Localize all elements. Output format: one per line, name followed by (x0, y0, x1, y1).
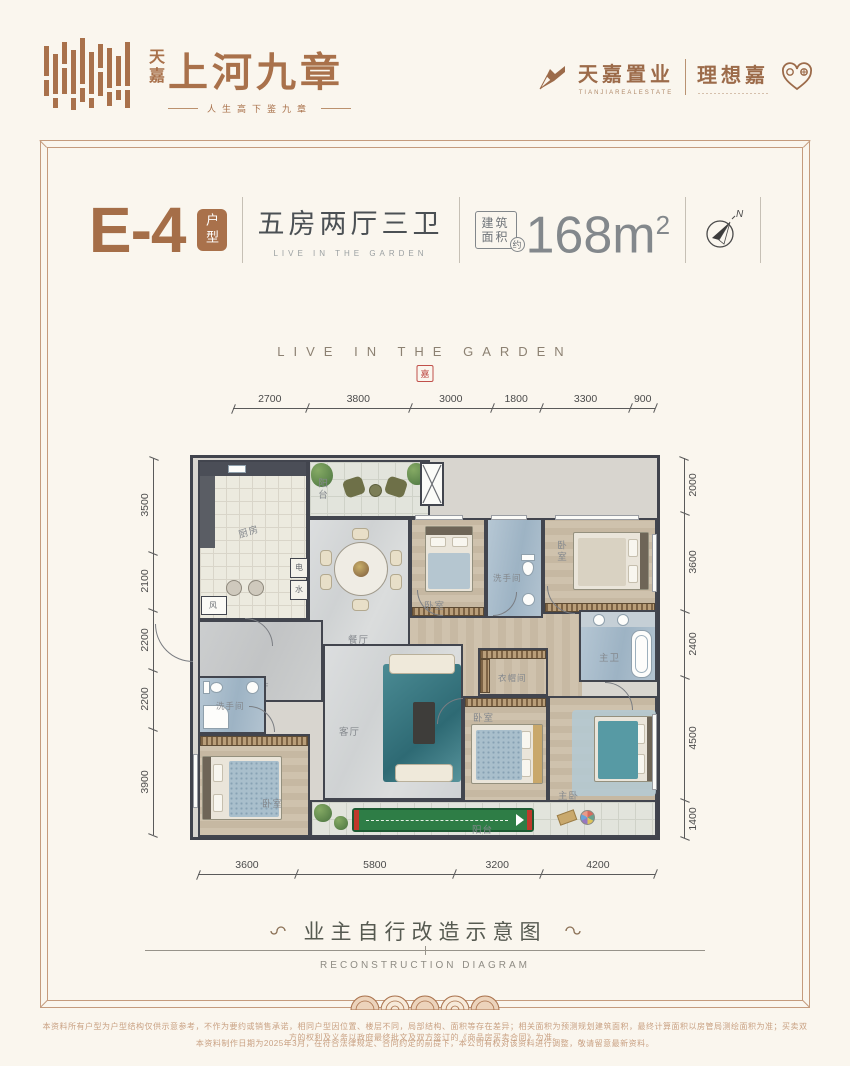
dim-value: 2700 (233, 393, 307, 405)
duct-shaft (420, 462, 444, 506)
ornament-left-icon (270, 924, 288, 938)
layout-text: 五房两厅三卫 (258, 202, 444, 241)
caption-subtitle: RECONSTRUCTION DIAGRAM (0, 960, 850, 971)
area-value: 168m2 (526, 197, 671, 263)
door-arc (249, 706, 275, 732)
bed (202, 756, 282, 820)
window (652, 534, 657, 592)
vent-label: 风 (209, 600, 218, 611)
window (193, 754, 198, 808)
pillow (628, 565, 638, 583)
partner-name: 理想嘉 (697, 59, 769, 88)
poster: 天嘉 上河九章 人生高下鉴九章 天嘉置业 TIANJIAREALESTATE 理… (0, 0, 850, 1066)
dim-segment: 5800 (296, 859, 454, 875)
room-cloakroom: 衣帽间 (478, 648, 548, 696)
partner-subtext-decor (697, 92, 769, 95)
pillow (521, 759, 531, 777)
kitchen-appliance-column (200, 476, 215, 548)
pillow (452, 537, 468, 547)
utility-label: 电 (295, 562, 304, 573)
corporate-logos: 天嘉置业 TIANJIAREALESTATE 理想嘉 (537, 58, 814, 96)
bed-headboard (533, 725, 542, 783)
developer-name-block: 天嘉置业 TIANJIAREALESTATE (578, 58, 674, 96)
dim-value: 3800 (307, 393, 410, 405)
dim-value: 4200 (541, 859, 655, 871)
pillow (430, 537, 446, 547)
brand-tagline: 人生高下鉴九章 (207, 102, 312, 115)
watermark-text: LIVE IN THE GARDEN (0, 344, 850, 359)
plant (334, 816, 348, 830)
sink-icon (593, 614, 605, 626)
caption-title: 业主自行改造示意图 (304, 916, 547, 946)
bed-headboard (203, 757, 211, 819)
dim-value: 3600 (198, 859, 296, 871)
title-divider-2 (459, 197, 460, 263)
dining-centerpiece (353, 561, 369, 577)
developer-name-en: TIANJIAREALESTATE (578, 90, 674, 96)
room-bedroom-left: 卧室 (198, 734, 310, 837)
title-divider-3 (685, 197, 686, 263)
wardrobe (480, 650, 546, 659)
logo-divider (685, 59, 686, 95)
area-block: 建筑 面积 约 168m2 (475, 197, 671, 263)
vent-box: 风 (201, 596, 227, 615)
area-label-stamp: 建筑 面积 约 (475, 211, 517, 249)
dim-segment: 3200 (454, 859, 541, 875)
pillow (521, 731, 531, 749)
dim-value: 2200 (139, 688, 151, 711)
fan-ornament (350, 984, 500, 1010)
sink-icon (246, 681, 259, 694)
caption-divider (145, 950, 705, 951)
dim-value: 1400 (687, 807, 699, 830)
dim-segment: 2200 (137, 610, 154, 670)
dim-value: 5800 (296, 859, 454, 871)
dim-segment: 2100 (137, 553, 154, 610)
pillow (213, 764, 223, 782)
window (555, 515, 639, 520)
toilet-bowl (210, 682, 223, 693)
room-balcony-bottom: 阳台 (310, 800, 657, 837)
room-label: 卧室 (553, 540, 567, 563)
area-label-line1: 建筑 (482, 216, 510, 230)
shaft-x-icon (422, 464, 442, 504)
dim-value: 2400 (687, 632, 699, 655)
room-label: 卧室 (262, 796, 283, 810)
dim-segment: 3500 (137, 458, 154, 553)
dim-segment: 3800 (307, 393, 410, 409)
room-label: 阳台 (314, 478, 328, 501)
tagline-line-left (168, 108, 198, 109)
window (415, 515, 463, 520)
dim-value: 3200 (454, 859, 541, 871)
room-label: 洗手间 (216, 700, 245, 712)
red-seal: 嘉 (417, 365, 434, 382)
area-approx-badge: 约 (510, 237, 525, 252)
area-label-line2: 面积 (482, 230, 510, 244)
wardrobe (200, 736, 308, 746)
dim-segment: 3000 (410, 393, 492, 409)
dim-value: 3000 (410, 393, 492, 405)
dim-segment: 2400 (684, 611, 701, 677)
sofa (395, 764, 453, 782)
dining-chair (320, 574, 332, 590)
dim-value: 2100 (139, 570, 151, 593)
dim-value: 900 (630, 393, 655, 405)
room-label: 卧室 (473, 710, 494, 724)
sofa (389, 654, 455, 674)
window (652, 714, 657, 790)
dim-segment: 2000 (684, 458, 701, 513)
layout-text-en: LIVE IN THE GARDEN (258, 249, 444, 258)
bathtub-inner (635, 635, 648, 673)
kitchen-counter (200, 462, 306, 476)
dim-segment: 3600 (684, 513, 701, 611)
dim-right: 20003600240045001400 (684, 458, 701, 838)
dim-segment: 3300 (541, 393, 631, 409)
dining-chair (352, 528, 369, 540)
utility-water-box: 水 (290, 580, 308, 600)
dining-chair (352, 599, 369, 611)
room-label: 衣帽间 (498, 672, 527, 684)
unit-code: E-4 (89, 196, 186, 264)
room-label: 厨房 (236, 521, 260, 541)
dim-value: 2000 (687, 474, 699, 497)
toilet-icon (521, 554, 535, 561)
dim-segment: 4200 (541, 859, 655, 875)
partner-block: 理想嘉 (697, 59, 769, 95)
wardrobe (465, 698, 546, 707)
brand-cn-main: 上河九章 (168, 40, 344, 98)
utility-power-box: 电 (290, 558, 308, 578)
dim-segment: 3900 (137, 729, 154, 835)
brand-cn-small: 天嘉 (142, 48, 166, 86)
dining-chair (390, 574, 402, 590)
ornament-right-icon (563, 924, 581, 938)
dim-value: 4500 (687, 727, 699, 750)
brand-tagline-row: 人生高下鉴九章 (168, 102, 351, 115)
title-divider-1 (242, 197, 243, 263)
coffee-table (413, 702, 435, 744)
dim-value: 3900 (139, 770, 151, 793)
dim-value: 3500 (139, 494, 151, 517)
balcony-chair (384, 475, 409, 498)
lounge-mat (557, 809, 578, 825)
caption-row: 业主自行改造示意图 (0, 916, 850, 946)
dim-top: 27003800300018003300900 (233, 392, 655, 409)
dim-value: 2200 (139, 628, 151, 651)
balcony-table (369, 484, 382, 497)
dim-bottom: 3600580032004200 (198, 858, 655, 875)
room-balcony-top: 阳台 (308, 460, 430, 518)
toilet-bowl (522, 561, 534, 576)
tagline-line-right (321, 108, 351, 109)
bathtub-icon (631, 630, 652, 678)
room-label: 洗手间 (493, 572, 522, 584)
compass-icon: N (701, 205, 745, 255)
dim-value: 3600 (687, 550, 699, 573)
dining-chair (390, 550, 402, 566)
dim-segment: 3600 (198, 859, 296, 875)
bed (594, 716, 656, 782)
dim-segment: 4500 (684, 677, 701, 800)
utility-label: 水 (295, 584, 304, 595)
golf-endcap (354, 810, 359, 830)
heart-logo-icon (780, 62, 814, 92)
plant (314, 804, 332, 822)
developer-name: 天嘉置业 (578, 58, 674, 87)
blanket (428, 553, 470, 589)
title-block: E-4 户型 五房两厅三卫 LIVE IN THE GARDEN 建筑 面积 约… (0, 196, 850, 264)
golf-dash-line (366, 820, 508, 821)
blanket (476, 730, 522, 780)
bed-headboard (640, 533, 648, 589)
wardrobe (412, 607, 484, 616)
room-label: 客厅 (339, 724, 360, 738)
golf-endcap (527, 810, 532, 830)
pillow (213, 794, 223, 812)
golf-green (352, 808, 534, 832)
toilet-icon (203, 681, 210, 694)
blanket (598, 721, 638, 779)
dim-value: 3300 (541, 393, 631, 405)
room-label: 主卫 (599, 650, 620, 664)
wardrobe (480, 659, 490, 693)
sink-icon (522, 593, 535, 606)
cooking-pot (226, 580, 242, 596)
cooking-pot (248, 580, 264, 596)
brand-bars-logo (42, 36, 138, 118)
pillow (628, 539, 638, 557)
title-divider-4 (760, 197, 761, 263)
unit-type-badge: 户型 (197, 209, 227, 251)
svg-text:N: N (736, 209, 744, 220)
bed-headboard (426, 527, 472, 535)
layout-block: 五房两厅三卫 LIVE IN THE GARDEN (258, 202, 444, 258)
flag-icon (537, 63, 567, 91)
bed (471, 724, 543, 784)
blanket (578, 538, 626, 586)
kitchen-sink (228, 465, 246, 473)
dim-segment: 1400 (684, 800, 701, 838)
door-arc (605, 682, 633, 710)
balcony-chair (342, 475, 367, 498)
dim-segment: 2200 (137, 670, 154, 730)
golf-chevron (516, 814, 524, 826)
room-label: 阳台 (472, 822, 493, 836)
sink-icon (617, 614, 629, 626)
dim-value: 1800 (492, 393, 541, 405)
disclaimer-line2: 本资料制作日期为2025年3月，在符合法律规定、合同约定的前提下，本公司有权对该… (40, 1038, 810, 1049)
floor-plan: 厨房 阳台 餐厅 电 (190, 455, 660, 840)
dim-segment: 900 (630, 393, 655, 409)
window (491, 515, 527, 520)
dim-segment: 1800 (492, 393, 541, 409)
dining-chair (320, 550, 332, 566)
beach-ball (580, 810, 595, 825)
bed (425, 526, 473, 592)
dim-left: 35002100220022003900 (137, 458, 154, 835)
dim-segment: 2700 (233, 393, 307, 409)
bed (573, 532, 649, 590)
room-master-bath: 主卫 (579, 610, 657, 682)
